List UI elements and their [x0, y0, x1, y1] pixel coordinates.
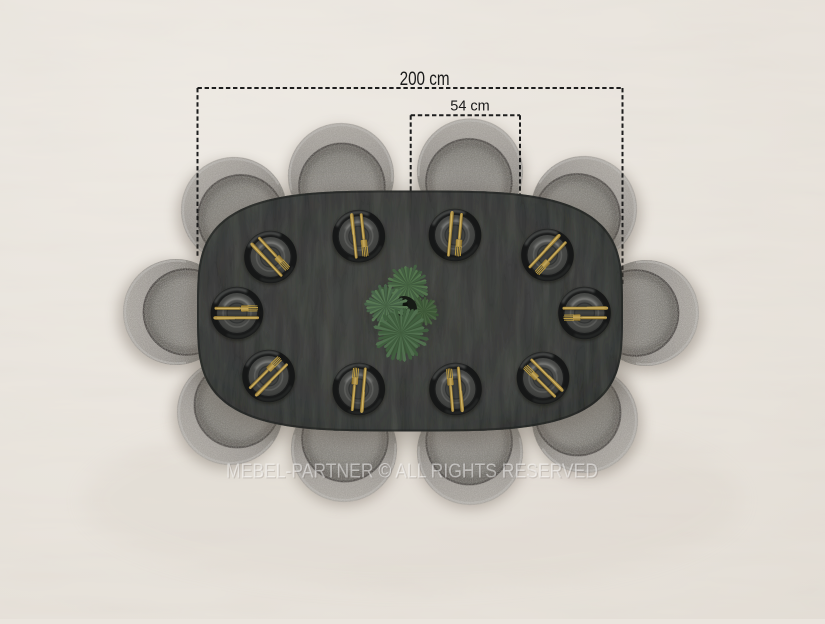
svg-text:200 cm: 200 cm — [400, 68, 450, 90]
svg-text:MEBEL-PARTNER © ALL RIGHTS R: MEBEL-PARTNER © ALL RIGHTS RESERVED — [226, 460, 598, 483]
svg-text:54 cm: 54 cm — [450, 98, 490, 114]
